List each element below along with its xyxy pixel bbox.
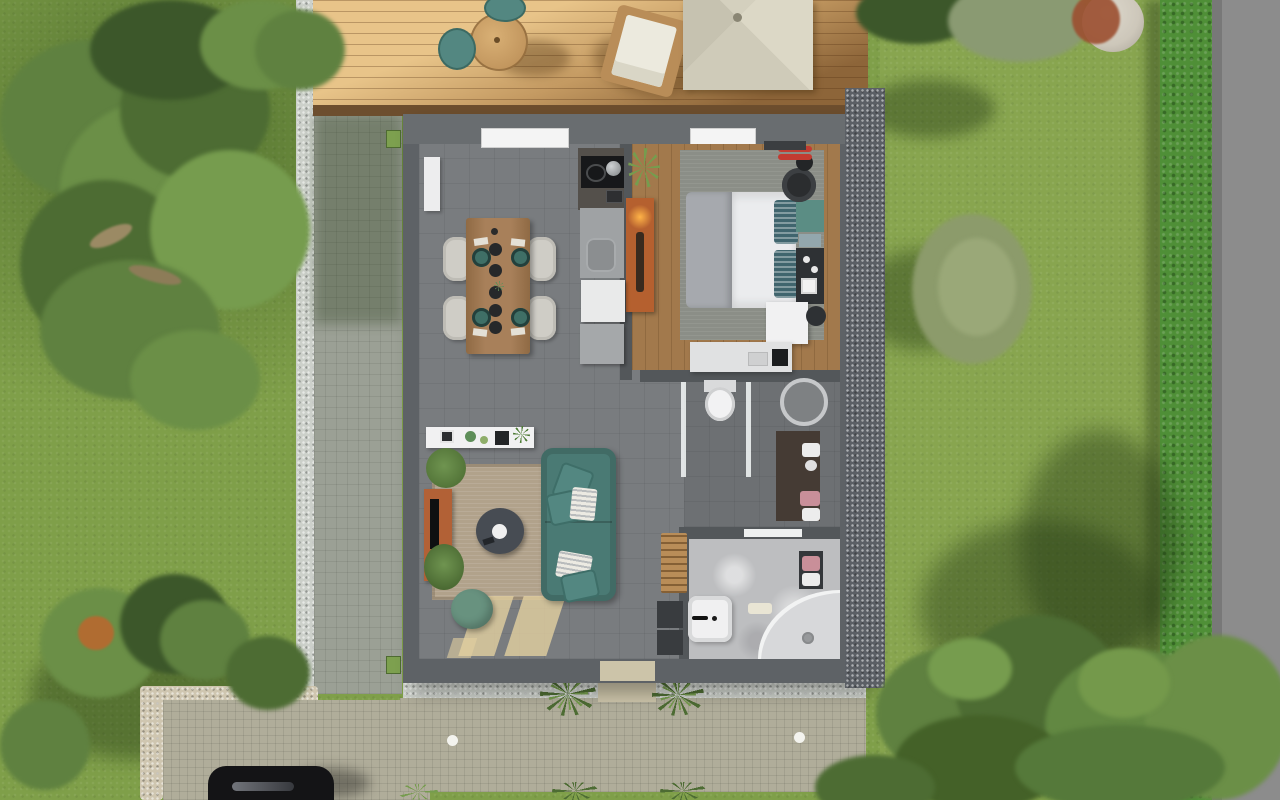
front-door [600, 661, 655, 681]
car-windshield [232, 782, 294, 791]
wardrobe-lamp-glow [628, 204, 652, 230]
grass-tuft [660, 782, 706, 800]
desk-laptop [772, 349, 788, 366]
bush [0, 700, 90, 790]
bedroom-plant [628, 148, 660, 188]
sink-drain [712, 616, 717, 621]
tall-white-cabinet [424, 157, 440, 211]
pavilion-apex [733, 13, 742, 22]
sideboard-pot-black [495, 431, 509, 445]
napkin [511, 238, 526, 246]
glass-partition [746, 382, 751, 477]
bath-mat [748, 603, 772, 614]
towel-pink [802, 556, 820, 571]
towel-roll [805, 460, 817, 471]
napkin [511, 327, 526, 335]
ground-light [447, 735, 458, 746]
potted-plant [424, 544, 464, 590]
table-center-dot [494, 37, 500, 43]
glass-partition [681, 382, 686, 477]
sideboard-plant [480, 436, 488, 444]
grass-tuft [398, 784, 438, 800]
bedside-picture-frame [801, 278, 817, 294]
white-cabinet [766, 302, 808, 344]
deck-chair-teal [438, 28, 476, 70]
tv-screen [430, 499, 439, 549]
olive-tree-highlight [938, 238, 1016, 336]
glass-segment [744, 529, 802, 537]
window-north [481, 128, 569, 148]
tree-foliage-blob [130, 330, 260, 430]
pouf-teal [451, 589, 493, 629]
cooktop-burner [586, 164, 606, 182]
terrace [400, 698, 866, 792]
grass-tuft [552, 782, 598, 800]
potted-plant [426, 448, 466, 488]
grass-plant [660, 680, 696, 710]
towel-white [802, 508, 820, 521]
bedside-decor-dot [803, 256, 810, 263]
table-candle [489, 304, 502, 317]
place-setting-plate [511, 308, 530, 327]
towel-white [802, 443, 820, 457]
bed-blanket-gray [686, 192, 734, 308]
path-light-green-box [386, 656, 401, 674]
coffee-table-tray [492, 524, 507, 539]
gravel-strip-west [296, 0, 314, 700]
dark-mat [657, 630, 683, 655]
bed-pillow [774, 250, 798, 298]
wall-shelf-dark [764, 141, 806, 150]
bedside-decor-dot [811, 266, 818, 273]
headboard-shelf [799, 234, 821, 247]
round-basin [780, 378, 828, 426]
tree-foliage-blob [1015, 725, 1225, 800]
dark-stool [806, 306, 826, 326]
table-sprig [494, 281, 504, 291]
bush-orange-accent [78, 616, 114, 650]
table-candle [489, 321, 502, 334]
towel-pink [800, 491, 820, 506]
path-light-green-box [386, 130, 401, 148]
kitchen-cabinet-gray [580, 324, 624, 364]
dumbbells-red [778, 154, 812, 160]
sideboard-frame [440, 430, 454, 443]
gravel-strip-east [845, 88, 885, 688]
sideboard-plant [465, 431, 476, 442]
stone-border-vertical [140, 686, 163, 800]
desk-drawers [748, 352, 768, 366]
bed-pillow [774, 200, 798, 244]
floor-plan-render [0, 0, 1280, 800]
cooking-pot [606, 161, 621, 176]
tree-foliage-highlight [1078, 648, 1170, 718]
dark-mat [657, 601, 683, 628]
round-lounge-chair [782, 168, 816, 202]
dining-chair [527, 237, 556, 281]
headboard-bench [796, 200, 824, 232]
kitchen-sink [586, 238, 616, 272]
dining-chair [527, 296, 556, 340]
bush [226, 636, 310, 710]
tree-foliage-highlight [928, 638, 1012, 700]
wardrobe-handle [636, 232, 644, 292]
sideboard-plant [513, 426, 530, 443]
shower-drain [802, 632, 814, 644]
kitchen-control-panel [606, 190, 623, 203]
ground-light [794, 732, 805, 743]
kitchen-appliance-white [581, 280, 625, 322]
table-dot [491, 228, 498, 235]
bedside-unit-dark [796, 248, 824, 304]
sofa-throw-striped [569, 487, 597, 521]
towel-white [802, 573, 820, 586]
place-setting-plate [511, 248, 530, 267]
sink-faucet [692, 616, 708, 620]
tree-foliage-blob [255, 10, 345, 90]
table-candle [489, 264, 502, 277]
towel-ladder [661, 533, 687, 593]
toilet-bowl [705, 387, 735, 421]
house-top-wall-face [403, 114, 862, 144]
pavilion-canopy [683, 0, 813, 90]
table-candle [489, 243, 502, 256]
